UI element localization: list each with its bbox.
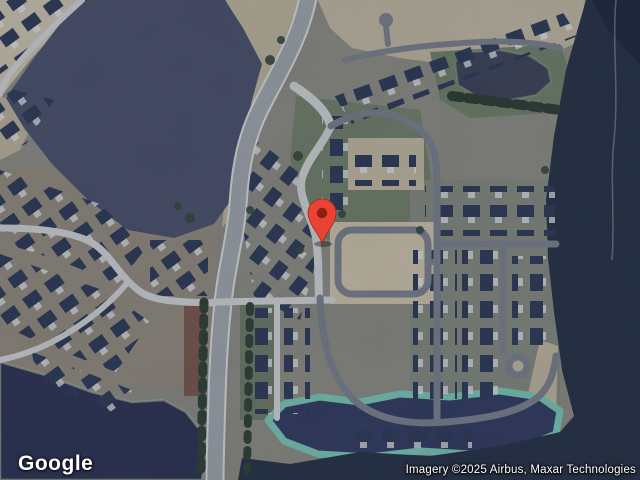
map-canvas[interactable]: Google Imagery ©2025 Airbus, Maxar Techn… <box>0 0 640 480</box>
imagery-attribution: Imagery ©2025 Airbus, Maxar Technologies <box>406 464 636 476</box>
google-logo[interactable]: Google <box>18 452 93 476</box>
satellite-imagery <box>0 0 640 480</box>
photo-tone-overlays <box>0 0 640 480</box>
pin-dot <box>317 208 327 218</box>
pin-shadow <box>314 241 332 247</box>
